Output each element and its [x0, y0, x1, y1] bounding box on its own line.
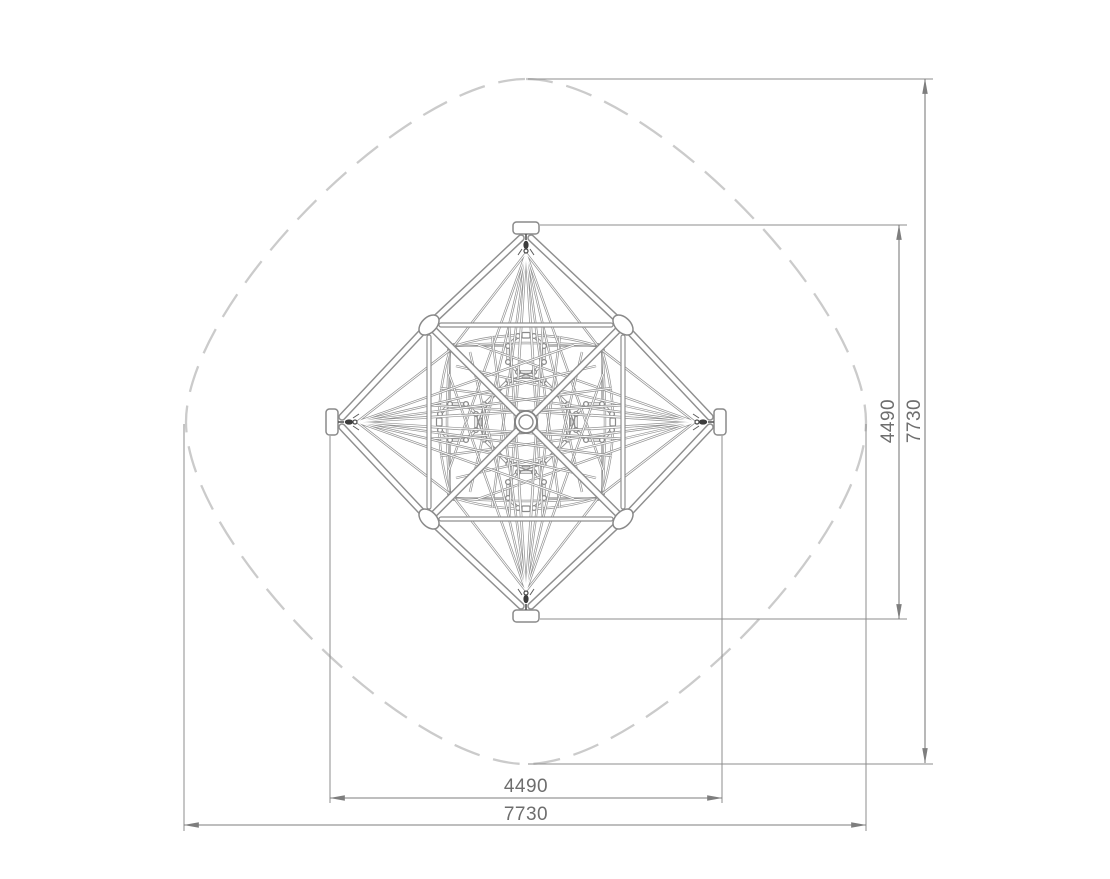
dimension-label-width-inner: 4490 — [504, 776, 548, 797]
central-ring — [515, 411, 537, 433]
dimension-label-width-outer: 7730 — [504, 804, 548, 825]
climbing-net-structure — [326, 222, 726, 622]
technical-drawing-page: 4490 7730 4490 7730 — [0, 0, 1110, 879]
climbing-net-plan-drawing: 4490 7730 4490 7730 — [0, 0, 1110, 879]
dimension-label-height-outer: 7730 — [904, 399, 925, 443]
dimension-label-height-inner: 4490 — [878, 399, 899, 443]
